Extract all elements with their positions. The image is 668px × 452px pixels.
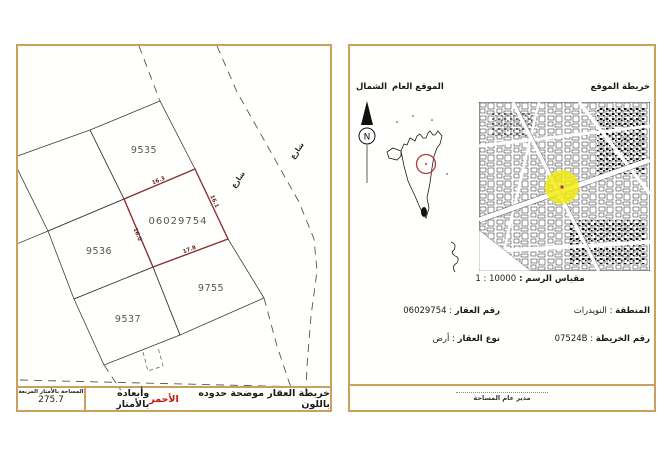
general-location-map — [377, 104, 477, 276]
parcel-unlabeled-shape — [18, 130, 124, 231]
fields-column-right: المنطقة : النويدرات رقم الخريطة : 07524B — [545, 306, 650, 362]
subject-marker — [561, 186, 564, 189]
district-label: المنطقة — [615, 306, 650, 316]
street-edge-lower — [264, 298, 294, 390]
map-number-label: رقم الخريطة — [596, 334, 650, 344]
compass-letter: N — [364, 133, 371, 143]
street-edge-upper — [139, 46, 160, 101]
boundary-notch — [143, 347, 163, 371]
scale-line: مقياس الرسم : 1 : 10000 — [435, 274, 625, 284]
map-legend-bar: المساحة بالأمتار المربعة 275.7 خريطة الع… — [18, 386, 330, 410]
street-far-edge — [217, 46, 317, 390]
plot-number-9535: 9535 — [131, 145, 157, 156]
urban-blob — [421, 207, 427, 217]
property-number-label: رقم العقار — [455, 306, 500, 316]
compass-arrow — [361, 101, 373, 125]
field-district: المنطقة : النويدرات — [545, 306, 650, 334]
property-type-label: نوع العقار — [458, 334, 500, 344]
field-map-number: رقم الخريطة : 07524B — [545, 334, 650, 362]
legend-note-text: خريطة العقار موضحة حدوده باللون — [179, 388, 330, 410]
field-property-number: رقم العقار : 06029754 — [380, 306, 500, 334]
field-property-type: نوع العقار : أرض — [380, 334, 500, 362]
parcel-map: 9535 9536 9537 9755 06029754 16.3 16.1 1… — [18, 46, 330, 390]
area-cell: المساحة بالأمتار المربعة 275.7 — [18, 388, 86, 410]
parcel-boundaries — [18, 101, 264, 365]
plot-number-9755: 9755 — [198, 283, 224, 294]
street-label-2: شارع — [289, 141, 306, 161]
site-map-label: خريطة الموقع — [590, 82, 650, 92]
scale-value: 1 : 10000 — [475, 274, 516, 284]
location-info-panel: الشمال الموقع العام خريطة الموقع N — [348, 44, 656, 412]
site-map — [479, 102, 650, 271]
survey-certificate-page: { "left_panel": { "plots": ["9535", "953… — [0, 0, 668, 452]
area-value: 275.7 — [18, 396, 84, 406]
signature-line — [456, 392, 548, 393]
fields-column-left: رقم العقار : 06029754 نوع العقار : أرض — [380, 306, 500, 362]
small-island-scribble — [451, 242, 458, 272]
legend-note-red-word: الأحمر — [149, 394, 178, 405]
general-location-label: الموقع العام — [392, 82, 444, 92]
dimension-left: 16.0 — [132, 227, 143, 242]
separator: : — [590, 334, 593, 344]
property-type-value: أرض — [433, 334, 450, 344]
north-label: الشمال — [356, 82, 387, 92]
plot-number-9537: 9537 — [115, 314, 141, 325]
separator: : — [449, 306, 452, 316]
district-value: النويدرات — [574, 306, 607, 316]
map-number-value: 07524B — [555, 334, 588, 344]
legend-note-tail: وأبعاده بالأمتار — [86, 388, 149, 410]
scale-label: مقياس الرسم : — [519, 274, 585, 284]
parcel-map-panel: 9535 9536 9537 9755 06029754 16.3 16.1 1… — [16, 44, 332, 412]
signature-title: مدير عام المساحة — [350, 394, 654, 402]
plot-number-9536: 9536 — [86, 246, 112, 257]
separator: : — [452, 334, 455, 344]
legend-note: خريطة العقار موضحة حدوده باللون الأحمر و… — [86, 388, 330, 410]
subject-parcel-number: 06029754 — [149, 216, 208, 227]
property-number-value: 06029754 — [403, 306, 446, 316]
street-label-1: شارع — [230, 170, 247, 190]
island-outline — [387, 131, 458, 272]
signature-section: مدير عام المساحة — [350, 384, 654, 410]
separator: : — [610, 306, 613, 316]
